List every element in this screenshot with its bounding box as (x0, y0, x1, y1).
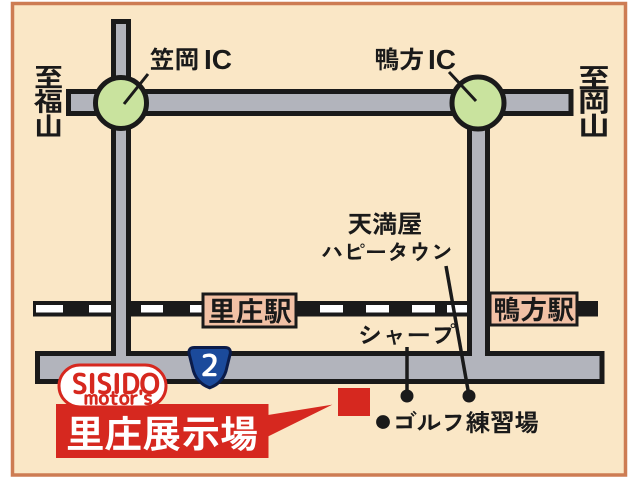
svg-text:IC: IC (204, 44, 232, 75)
svg-text:IC: IC (428, 44, 456, 75)
